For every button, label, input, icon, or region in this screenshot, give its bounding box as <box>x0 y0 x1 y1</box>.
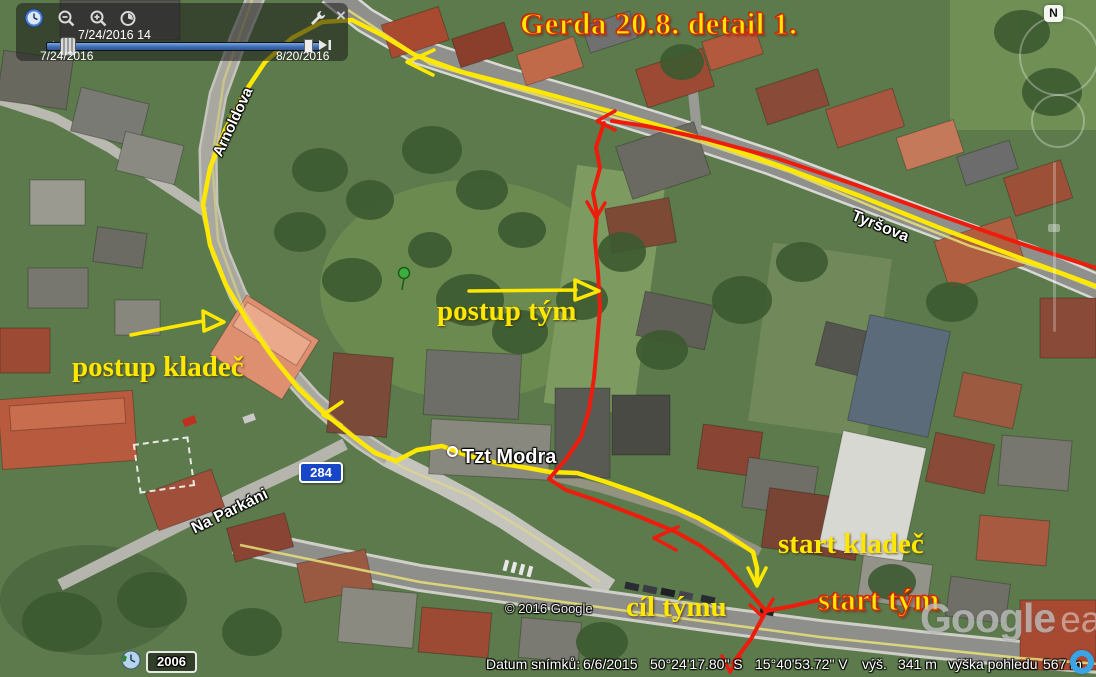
annotation-postup-kladec: postup kladeč <box>72 353 244 382</box>
google-earth-window: Gerda 20.8. detail 1. postup kladeč post… <box>0 0 1096 677</box>
move-joystick-ring[interactable] <box>1031 94 1085 148</box>
latitude-readout: 50°24'17.80" S <box>650 656 743 672</box>
longitude-readout: 15°40'53.72" V <box>755 656 848 672</box>
logo-google-text: Google <box>920 595 1055 641</box>
time-range-start-label: 7/24/2016 <box>40 49 93 63</box>
imagery-date-value: 6/6/2015 <box>583 656 638 672</box>
satellite-imagery[interactable] <box>0 0 1096 677</box>
time-slider-panel: × 7/24/2016 14 7/24/2016 8/20/2016 <box>16 3 348 61</box>
logo-earth-text: earth <box>1060 599 1096 640</box>
annotation-cil-tymu: cíl týmu <box>626 593 727 622</box>
road-shield-284: 284 <box>299 462 343 483</box>
time-current-label: 7/24/2016 14 <box>78 28 151 42</box>
time-zoom-in-icon[interactable] <box>90 10 107 27</box>
imagery-year-button[interactable]: 2006 <box>146 651 197 673</box>
street-label-tzt-modra: Tzt Modra <box>447 446 556 469</box>
zoom-slider-knob[interactable] <box>1048 224 1060 232</box>
map-title: Gerda 20.8. detail 1. <box>520 8 797 39</box>
historical-imagery-icon[interactable] <box>121 650 141 670</box>
eye-altitude-label: výška pohledu <box>948 656 1038 672</box>
copyright-text: © 2016 Google <box>505 601 593 616</box>
time-range-end-label: 8/20/2016 <box>276 49 329 63</box>
time-slider-clock-icon <box>24 8 44 28</box>
dashed-plot-outline <box>133 436 195 493</box>
time-options-clock-icon[interactable] <box>120 10 137 27</box>
place-marker-icon <box>447 446 458 457</box>
elevation-label: výš. <box>862 656 887 672</box>
annotation-postup-tym: postup tým <box>437 297 576 326</box>
time-zoom-out-icon[interactable] <box>58 10 75 27</box>
annotation-start-kladec: start kladeč <box>778 530 924 559</box>
zoom-slider[interactable] <box>1053 162 1056 332</box>
imagery-date-label: Datum snímků: <box>486 656 580 672</box>
elevation-value: 341 m <box>898 656 937 672</box>
google-earth-logo: Googleearth <box>920 595 1096 642</box>
time-settings-wrench-icon[interactable] <box>308 9 327 28</box>
time-panel-close-icon[interactable]: × <box>336 6 346 26</box>
streaming-indicator-icon <box>1070 650 1094 674</box>
look-joystick-ring[interactable] <box>1019 16 1096 96</box>
